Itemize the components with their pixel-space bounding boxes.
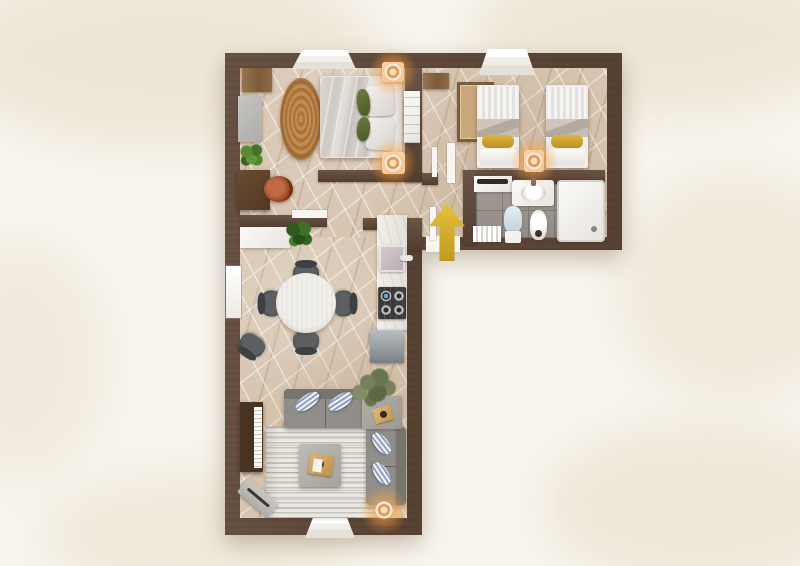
kitchen-plant-icon	[284, 220, 314, 252]
bidet-faucet-icon	[535, 230, 542, 237]
bidet	[530, 210, 547, 240]
towel-bar	[477, 179, 508, 184]
gas-hob	[378, 287, 406, 319]
floor-plan-canvas	[0, 0, 800, 566]
dining-table	[276, 273, 336, 333]
cup-icon	[379, 410, 388, 419]
sofa-cushion-split	[325, 399, 326, 428]
hanging-plant-icon	[346, 364, 400, 410]
toilet-lid	[504, 206, 522, 232]
toilet-tank	[505, 231, 521, 243]
mattress	[479, 87, 517, 121]
piano-keys	[254, 407, 262, 468]
bg-blotch	[540, 420, 800, 566]
gray-cabinet	[238, 96, 262, 142]
radiator	[473, 226, 501, 242]
window-kitchen	[226, 266, 241, 318]
coffee-table	[299, 444, 341, 487]
table-lamp-icon	[385, 64, 402, 81]
potted-plant-icon	[238, 142, 265, 169]
dining-chair	[334, 291, 355, 317]
sideboard	[240, 227, 290, 248]
floor-lamp-icon	[376, 502, 393, 519]
shower-tray	[557, 180, 605, 242]
door-leaf-master-bedroom	[292, 210, 327, 218]
wall-vestibule-west	[405, 218, 422, 250]
yellow-pillow	[551, 135, 583, 148]
sink-basin	[521, 184, 546, 202]
kitchen-faucet-icon	[400, 255, 413, 261]
bg-blotch	[615, 170, 800, 400]
piano	[240, 402, 263, 472]
toilet	[504, 206, 522, 243]
dresser	[242, 68, 272, 92]
mattress	[548, 87, 586, 121]
jute-rug	[280, 78, 322, 160]
door-leaf-bathroom	[432, 147, 437, 177]
shower-drain-icon	[591, 226, 597, 232]
table-lamp-icon	[526, 153, 543, 170]
door-leaf-hallway	[447, 143, 455, 183]
dining-chair	[293, 331, 319, 352]
dishwasher	[370, 330, 404, 363]
yellow-pillow	[482, 135, 514, 148]
desk-chair	[264, 176, 293, 202]
bg-blotch	[0, 240, 110, 480]
console-shelf	[423, 73, 449, 89]
wall-cabinet	[404, 91, 420, 143]
table-lamp-icon	[385, 155, 402, 172]
tray-card	[312, 458, 323, 472]
